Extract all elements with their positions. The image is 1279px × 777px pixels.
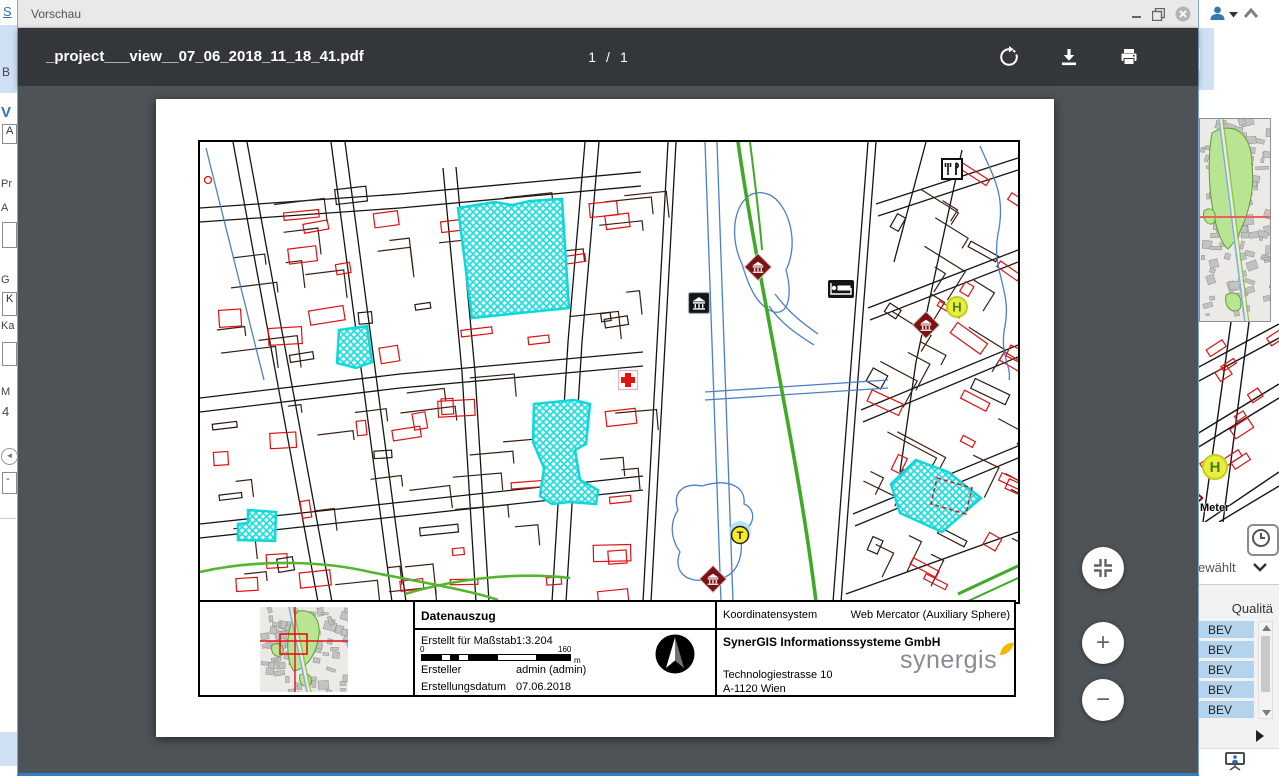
list-item-bev[interactable]: BEV (1197, 681, 1254, 698)
crs-value: Web Mercator (Auxiliary Sphere) (723, 609, 1010, 621)
dialog-title: Vorschau (31, 7, 81, 21)
user-menu-caret-icon[interactable] (1229, 12, 1238, 18)
presentation-icon[interactable] (1224, 751, 1246, 771)
scalebar-unit-label: Meter (1200, 502, 1229, 514)
svg-text:H: H (1210, 459, 1221, 476)
maximize-button[interactable] (1149, 6, 1167, 22)
pdf-page: HT Datenauszug Erstellt für Maßstab 1:3.… (156, 99, 1054, 737)
list-item-label: BEV (1197, 703, 1232, 717)
left-label-m: M (1, 386, 10, 398)
svg-text:T: T (737, 530, 744, 542)
user-icon[interactable] (1209, 5, 1226, 22)
left-row-label: B (2, 65, 10, 79)
list-item-label: BEV (1197, 643, 1232, 657)
table-divider (413, 602, 415, 695)
left-link-fragment[interactable]: S (3, 4, 12, 19)
list-item-label: BEV (1197, 683, 1232, 697)
scalebar (421, 654, 571, 661)
page-separator: / (606, 49, 610, 65)
date-label: Erstellungsdatum (421, 681, 506, 693)
table-divider (715, 628, 1014, 630)
scalebar-start: 0 (420, 645, 424, 654)
left-input-4[interactable]: - (2, 472, 17, 494)
minimize-button[interactable] (1128, 6, 1146, 22)
left-bottom-row (0, 732, 17, 766)
print-button[interactable] (1112, 42, 1146, 72)
close-button[interactable] (1174, 6, 1192, 22)
rotate-button[interactable] (992, 42, 1026, 72)
left-selected-row[interactable]: B (0, 25, 17, 93)
selection-dropdown[interactable]: ewählt (1198, 560, 1236, 575)
list-item-bev[interactable]: BEV (1197, 641, 1254, 658)
scale-value: 1:3.204 (516, 635, 553, 647)
list-item-bev[interactable]: BEV (1197, 621, 1254, 638)
background-app-left: S B V A Pr A G K Ka M 4 ◄ - (0, 0, 17, 776)
left-input-2[interactable] (2, 222, 17, 248)
map-image: HT (198, 140, 1020, 604)
svg-text:H: H (952, 300, 961, 315)
preview-dialog: Vorschau _project___view__07_06_2018_11_… (17, 0, 1199, 776)
list-item-label: BEV (1197, 623, 1232, 637)
left-label-a: A (1, 202, 8, 214)
left-heading-fragment: V (1, 104, 11, 121)
list-item-bev[interactable]: BEV (1197, 701, 1254, 718)
chevron-down-icon[interactable] (1253, 563, 1267, 572)
left-value-4: 4 (2, 404, 9, 419)
creator-label: Ersteller (421, 664, 461, 676)
history-clock-button[interactable] (1247, 524, 1279, 556)
scrollbar-thumb[interactable] (1261, 636, 1270, 692)
overview-map-thumbnail[interactable] (1199, 118, 1271, 322)
address-line2: A-1120 Wien (723, 683, 786, 695)
scale-label: Erstellt für Maßstab (421, 635, 516, 647)
expand-right-icon[interactable] (1255, 730, 1265, 742)
left-input-3[interactable] (2, 342, 17, 366)
background-app-right: H Meter ewählt Qualitä BEVBEVBEVBEVBEV (1197, 0, 1279, 776)
left-label-pr: Pr (1, 178, 12, 190)
left-label-g: G (1, 274, 10, 286)
table-title: Datenauszug (421, 609, 496, 623)
scalebar-end: 160 (558, 645, 571, 654)
left-input-a[interactable]: A (2, 124, 17, 144)
page-current: 1 (588, 49, 596, 65)
left-label-ka: Ka (1, 320, 14, 332)
list-item-bev[interactable]: BEV (1197, 661, 1254, 678)
column-header-quality: Qualitä (1197, 601, 1273, 616)
pdf-viewer-area[interactable]: HT Datenauszug Erstellt für Maßstab 1:3.… (18, 86, 1198, 773)
synergis-logo-leaf-icon (999, 642, 1015, 656)
zoom-in-button[interactable]: + (1082, 622, 1124, 664)
dialog-titlebar[interactable]: Vorschau (18, 0, 1198, 28)
locator-map-thumbnail (260, 607, 348, 692)
collapse-arrow-icon[interactable]: ◄ (1, 448, 18, 465)
list-item-label: BEV (1197, 663, 1232, 677)
scroll-down-icon[interactable] (1262, 710, 1271, 717)
pdf-toolbar: _project___view__07_06_2018_11_18_41.pdf… (18, 28, 1198, 86)
synergis-logo: synergis (900, 646, 997, 675)
table-divider (715, 602, 717, 695)
date-value: 07.06.2018 (516, 681, 571, 693)
background-map[interactable]: H (1197, 322, 1279, 522)
creator-value: admin (admin) (516, 664, 586, 676)
zoom-out-button[interactable]: − (1082, 679, 1124, 721)
map-info-table: Datenauszug Erstellt für Maßstab 1:3.204… (198, 600, 1016, 697)
download-button[interactable] (1052, 42, 1086, 72)
left-input-k[interactable]: K (2, 292, 17, 316)
north-arrow (654, 633, 696, 675)
left-divider (0, 518, 16, 519)
fit-to-page-button[interactable] (1082, 547, 1124, 589)
scroll-up-icon[interactable] (1262, 625, 1271, 632)
chevron-up-icon[interactable] (1243, 7, 1259, 19)
list-scrollbar[interactable] (1258, 621, 1273, 719)
layer-list: BEVBEVBEVBEVBEV (1197, 621, 1254, 721)
table-divider (413, 628, 715, 630)
address-line1: Technologiestrasse 10 (723, 669, 832, 681)
page-total: 1 (620, 49, 628, 65)
